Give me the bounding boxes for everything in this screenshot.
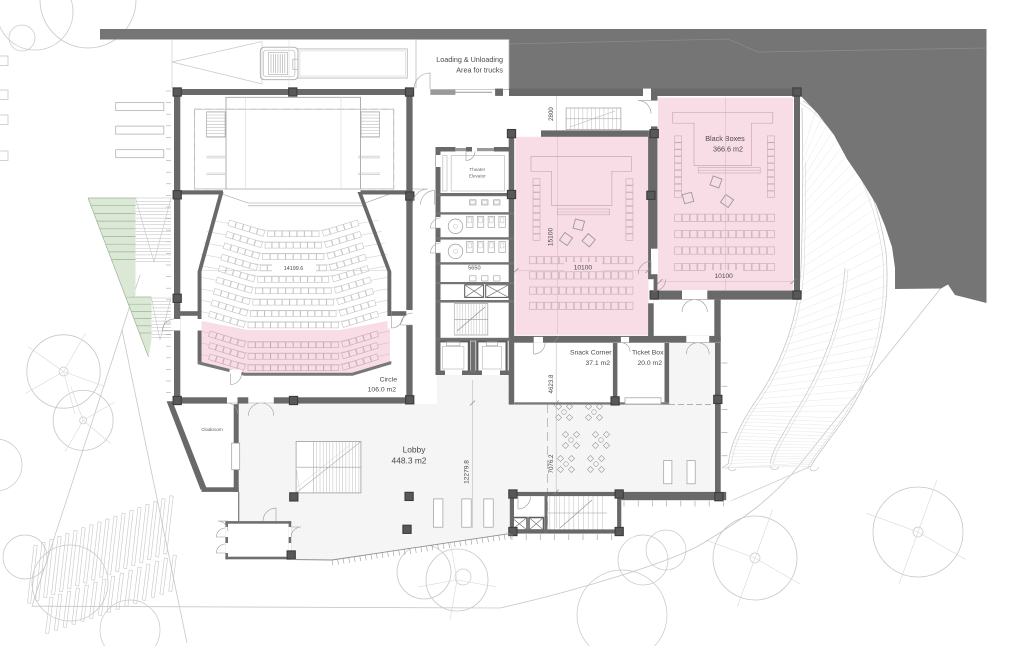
svg-text:Loading & Unloading: Loading & Unloading (436, 55, 503, 64)
svg-text:366.6 m2: 366.6 m2 (713, 145, 743, 154)
svg-text:Elevator: Elevator (469, 174, 486, 179)
svg-text:4623.8: 4623.8 (548, 374, 555, 393)
svg-text:10100: 10100 (715, 273, 734, 280)
svg-text:15100: 15100 (548, 228, 555, 247)
svg-text:448.3 m2: 448.3 m2 (392, 456, 427, 466)
svg-text:14199.6: 14199.6 (284, 266, 304, 272)
svg-text:Theater: Theater (469, 167, 485, 172)
svg-text:Ticket Box: Ticket Box (632, 350, 664, 357)
svg-text:Cloakroom: Cloakroom (201, 427, 223, 432)
svg-text:2800: 2800 (548, 107, 555, 121)
svg-text:12279.8: 12279.8 (464, 460, 471, 484)
svg-text:37.1 m2: 37.1 m2 (585, 360, 610, 367)
svg-text:106.0 m2: 106.0 m2 (368, 387, 397, 394)
svg-text:5650: 5650 (468, 265, 480, 271)
svg-text:10100: 10100 (574, 265, 593, 272)
svg-text:Snack Corner: Snack Corner (570, 350, 612, 357)
svg-text:Black Boxes: Black Boxes (705, 134, 745, 143)
svg-text:20.0 m2: 20.0 m2 (637, 360, 662, 367)
svg-text:Lobby: Lobby (403, 445, 427, 455)
svg-text:Area for trucks: Area for trucks (456, 66, 503, 75)
svg-text:7076.2: 7076.2 (548, 454, 555, 473)
svg-text:Circle: Circle (380, 376, 398, 383)
